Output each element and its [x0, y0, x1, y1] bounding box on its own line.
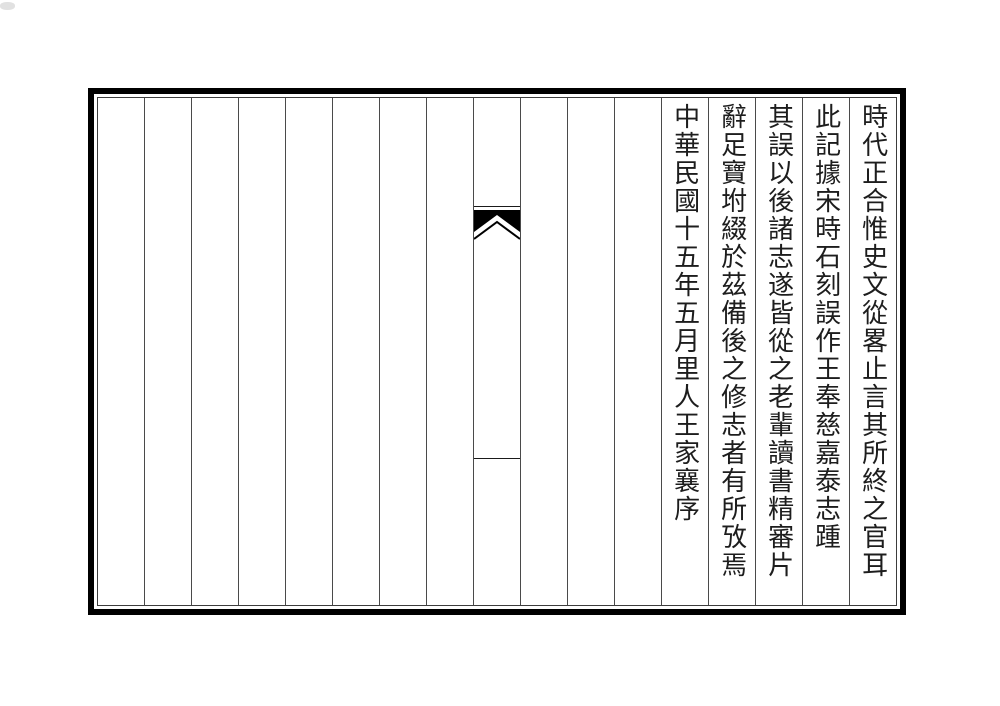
empty-column-11	[614, 98, 661, 605]
empty-column-7	[379, 98, 426, 605]
fishtail-icon	[474, 210, 520, 242]
empty-column-8	[426, 98, 473, 605]
column-text-1: 時代正合惟史文從畧止言其所終之官耳	[859, 103, 886, 605]
text-column-1: 時代正合惟史文從畧止言其所終之官耳	[849, 98, 896, 605]
text-column-3: 其誤以後諸志遂皆從之老輩讀書精審片	[755, 98, 802, 605]
empty-column-6	[332, 98, 379, 605]
empty-column-5	[285, 98, 332, 605]
column-text-3: 其誤以後諸志遂皆從之老輩讀書精審片	[765, 103, 792, 605]
column-text-5: 中華民國十五年五月里人王家襄序	[671, 103, 698, 605]
empty-column-2	[144, 98, 191, 605]
empty-column-4	[238, 98, 285, 605]
empty-column-1	[98, 98, 144, 605]
scan-artifact	[0, 2, 15, 10]
banxin-top-rule	[474, 206, 520, 207]
text-column-4: 辭足寶坿綴於茲備後之修志者有所攷焉	[708, 98, 755, 605]
column-text-4: 辭足寶坿綴於茲備後之修志者有所攷焉	[718, 103, 745, 605]
scanned-page: 中華民國十五年五月里人王家襄序 辭足寶坿綴於茲備後之修志者有所攷焉 其誤以後諸志…	[0, 0, 1000, 706]
banxin-column	[473, 98, 520, 605]
banxin-bottom-rule	[474, 458, 520, 459]
folio-outer-border: 中華民國十五年五月里人王家襄序 辭足寶坿綴於茲備後之修志者有所攷焉 其誤以後諸志…	[88, 88, 906, 615]
empty-column-10	[567, 98, 614, 605]
text-column-2: 此記據宋時石刻誤作王奉慈嘉泰志踵	[802, 98, 849, 605]
column-text-2: 此記據宋時石刻誤作王奉慈嘉泰志踵	[812, 103, 839, 605]
text-column-5: 中華民國十五年五月里人王家襄序	[661, 98, 708, 605]
folio-text-frame: 中華民國十五年五月里人王家襄序 辭足寶坿綴於茲備後之修志者有所攷焉 其誤以後諸志…	[97, 97, 897, 606]
empty-column-3	[191, 98, 238, 605]
empty-column-9	[520, 98, 567, 605]
